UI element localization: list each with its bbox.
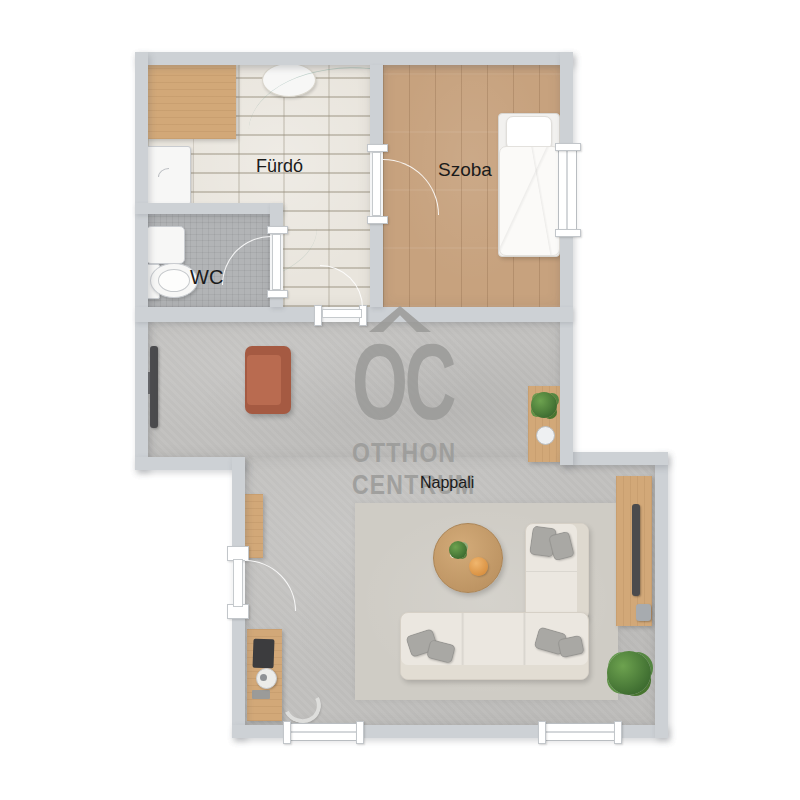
wall-top [135, 52, 573, 65]
bedroom-door-frame [367, 216, 388, 224]
living-window-left [286, 723, 362, 741]
living-window-left-cap [356, 721, 364, 744]
toilet-seat [158, 269, 190, 292]
bedroom-window-cap [555, 229, 581, 237]
bedroom-label: Szoba [438, 159, 492, 181]
bedroom-window-cap [555, 143, 581, 151]
wall-right-upper [560, 52, 573, 465]
stool-center [260, 674, 267, 681]
coffee-table [433, 523, 503, 593]
wc-sink [146, 226, 185, 264]
laptop [253, 639, 275, 669]
brand-line1: OTTHON [352, 437, 456, 469]
bedroom-door [372, 152, 381, 216]
bedroom-window [558, 146, 577, 234]
bed-duvet [499, 146, 560, 256]
bedroom-door-frame [367, 144, 388, 152]
loveseat-cushions [247, 355, 281, 405]
tv-left-wall [150, 346, 158, 428]
wall-left-upper [135, 52, 148, 470]
wc-label: WC [190, 266, 223, 289]
living-room-label: Nappali [420, 474, 474, 492]
floor-plan: OC OTTHON CENTRUM Fürdó WC Szoba Nappali [0, 0, 800, 800]
bathroom-label: Fürdó [256, 156, 303, 177]
plant-bottom-right [607, 651, 651, 695]
living-window-left-cap [283, 721, 291, 744]
wc-door-frame [267, 226, 288, 234]
living-window-right-cap [614, 721, 622, 744]
wall-right-lower [655, 452, 668, 738]
bathroom-door [322, 309, 362, 318]
brand-logo: OC [352, 336, 453, 427]
wc-door-frame [267, 290, 288, 298]
living-window-right-cap [538, 721, 546, 744]
plant-console [531, 392, 557, 418]
sauna-bench [146, 64, 236, 139]
fruit-bowl [469, 557, 488, 576]
wc-door [272, 234, 281, 290]
wall-wc-top [135, 203, 283, 214]
decor-object [636, 604, 651, 621]
table-plant [449, 541, 467, 559]
wall-step-left [135, 457, 245, 470]
tv-right [632, 504, 640, 596]
bed-pillow [506, 116, 552, 150]
keyboard [252, 690, 270, 699]
bathroom-door-frame [314, 305, 322, 326]
living-window-right [541, 723, 621, 741]
wall-step-right [560, 452, 668, 465]
entry-door [233, 559, 243, 607]
vase [536, 426, 555, 445]
